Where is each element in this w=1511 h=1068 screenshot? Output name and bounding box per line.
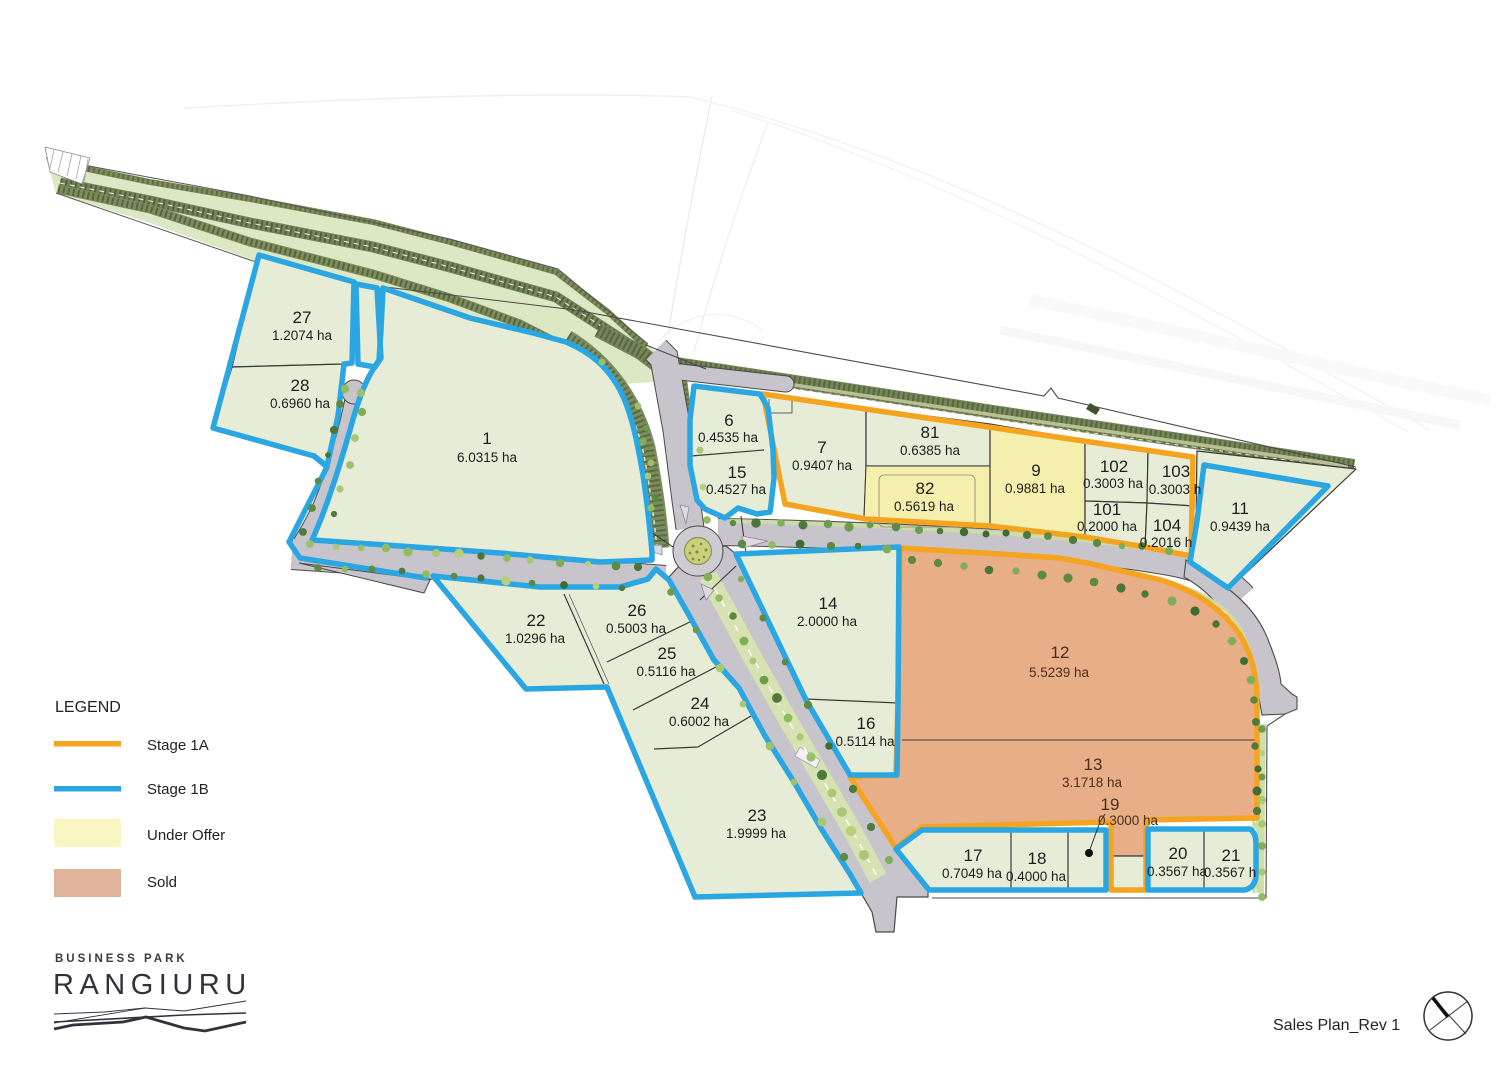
svg-text:6: 6 — [724, 411, 733, 430]
svg-text:11: 11 — [1231, 499, 1249, 518]
svg-text:16: 16 — [857, 714, 876, 733]
svg-text:9: 9 — [1031, 461, 1040, 480]
svg-text:Stage 1B: Stage 1B — [147, 781, 209, 798]
svg-text:26: 26 — [628, 601, 647, 620]
svg-text:103: 103 — [1162, 462, 1190, 481]
svg-text:102: 102 — [1100, 457, 1128, 476]
svg-text:BUSINESS PARK: BUSINESS PARK — [55, 953, 188, 965]
svg-text:0.3000 ha: 0.3000 ha — [1098, 813, 1159, 828]
svg-text:RANGIURU: RANGIURU — [53, 969, 252, 1001]
svg-text:0.2000 ha: 0.2000 ha — [1077, 519, 1138, 534]
svg-text:0.2016 h: 0.2016 h — [1140, 535, 1193, 550]
svg-text:24: 24 — [691, 694, 710, 713]
svg-text:5.5239 ha: 5.5239 ha — [1029, 665, 1090, 680]
svg-text:Stage 1A: Stage 1A — [147, 737, 209, 754]
svg-text:19: 19 — [1101, 795, 1120, 814]
svg-text:0.5114 ha: 0.5114 ha — [835, 734, 895, 749]
svg-text:0.6385 ha: 0.6385 ha — [900, 443, 961, 458]
svg-text:0.6002 ha: 0.6002 ha — [669, 714, 730, 729]
svg-text:22: 22 — [527, 611, 546, 630]
svg-text:0.5619 ha: 0.5619 ha — [894, 499, 955, 514]
svg-text:0.3567 ha: 0.3567 ha — [1147, 864, 1208, 879]
svg-text:0.3003 h: 0.3003 h — [1149, 482, 1202, 497]
svg-text:1: 1 — [482, 429, 491, 448]
svg-text:23: 23 — [748, 806, 767, 825]
svg-text:0.4535 ha: 0.4535 ha — [698, 430, 759, 445]
svg-text:21: 21 — [1222, 846, 1241, 865]
svg-text:3.1718 ha: 3.1718 ha — [1062, 775, 1123, 790]
svg-text:82: 82 — [916, 479, 935, 498]
svg-text:15: 15 — [728, 463, 747, 482]
svg-text:14: 14 — [819, 594, 838, 613]
svg-text:0.4527 ha: 0.4527 ha — [706, 482, 767, 497]
svg-text:0.9881 ha: 0.9881 ha — [1005, 481, 1066, 496]
svg-text:25: 25 — [658, 644, 677, 663]
svg-text:0.3003 ha: 0.3003 ha — [1083, 476, 1144, 491]
svg-text:2.0000 ha: 2.0000 ha — [797, 614, 858, 629]
svg-text:Sales Plan_Rev 1: Sales Plan_Rev 1 — [1273, 1017, 1400, 1034]
svg-text:1.2074 ha: 1.2074 ha — [272, 328, 333, 343]
svg-text:101: 101 — [1093, 500, 1121, 519]
svg-text:0.7049 ha: 0.7049 ha — [942, 866, 1003, 881]
svg-text:18: 18 — [1028, 849, 1047, 868]
svg-text:0.5116 ha: 0.5116 ha — [636, 664, 696, 679]
svg-text:13: 13 — [1084, 755, 1103, 774]
svg-text:20: 20 — [1169, 844, 1188, 863]
svg-text:0.6960 ha: 0.6960 ha — [270, 396, 331, 411]
svg-text:1.9999 ha: 1.9999 ha — [726, 826, 787, 841]
svg-text:0.9407 ha: 0.9407 ha — [792, 458, 853, 473]
svg-text:28: 28 — [291, 376, 310, 395]
svg-text:27: 27 — [293, 308, 312, 327]
svg-text:0.4000 ha: 0.4000 ha — [1006, 869, 1067, 884]
svg-text:Sold: Sold — [147, 874, 177, 891]
svg-text:17: 17 — [964, 846, 983, 865]
svg-text:0.5003 ha: 0.5003 ha — [606, 621, 667, 636]
svg-text:81: 81 — [921, 423, 940, 442]
svg-text:LEGEND: LEGEND — [55, 699, 121, 716]
svg-text:0.9439 ha: 0.9439 ha — [1210, 519, 1271, 534]
svg-text:1.0296 ha: 1.0296 ha — [505, 631, 566, 646]
svg-text:Under Offer: Under Offer — [147, 827, 225, 844]
svg-text:104: 104 — [1153, 516, 1181, 535]
svg-text:0.3567 h: 0.3567 h — [1204, 865, 1257, 880]
svg-text:12: 12 — [1051, 643, 1070, 662]
svg-text:7: 7 — [817, 438, 826, 457]
svg-text:6.0315 ha: 6.0315 ha — [457, 450, 518, 465]
